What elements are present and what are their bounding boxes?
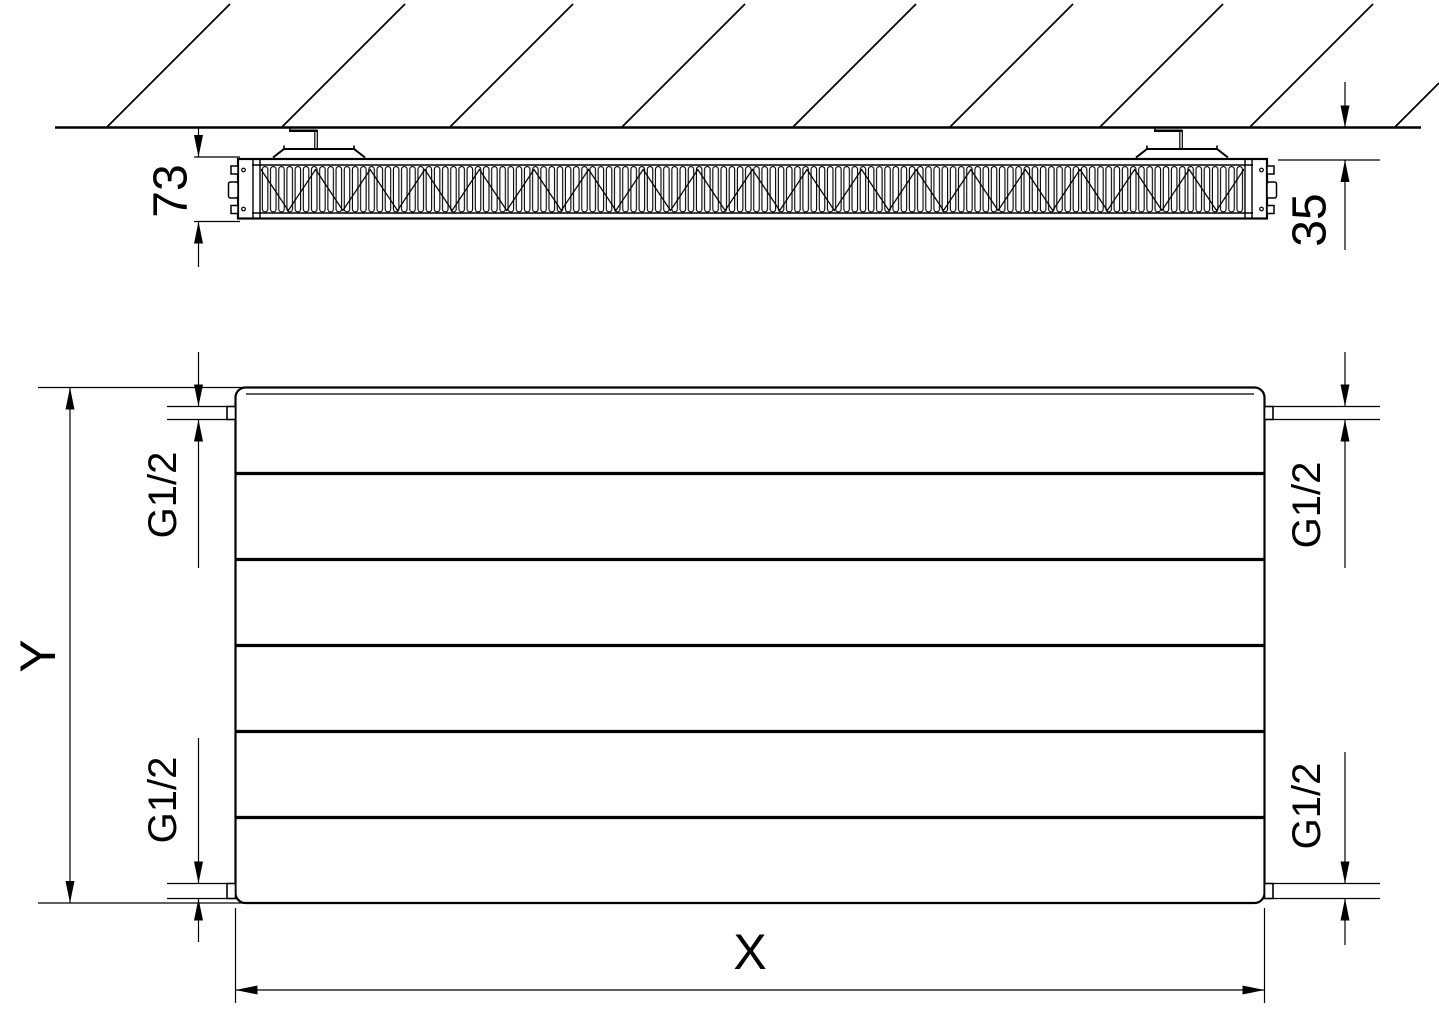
dim-g12-top-left: G1/2 xyxy=(141,352,227,568)
arrow-left-icon xyxy=(236,986,258,995)
radiator-top-view xyxy=(229,128,1277,219)
arrow-down-icon xyxy=(1341,106,1350,128)
arrow-up-icon xyxy=(1341,160,1350,182)
arrow-down-icon xyxy=(66,881,75,903)
wall-hatching xyxy=(107,4,1439,127)
connection-stub-bottom-left xyxy=(227,884,236,899)
convector-fins xyxy=(261,166,1244,213)
dim-x: X xyxy=(236,908,1265,1003)
dim-g12-bottom-left: G1/2 xyxy=(141,738,227,942)
connection-stub-top-left xyxy=(227,407,236,420)
g12-bottom-left-label: G1/2 xyxy=(141,757,185,844)
connection-stub-bottom-right xyxy=(1265,884,1274,899)
arrow-up-icon xyxy=(194,420,203,442)
dim-x-label: X xyxy=(733,924,766,980)
radiator-technical-drawing: 73 35 G1/2 xyxy=(0,0,1439,1025)
dim-35-label: 35 xyxy=(1284,193,1337,246)
arrow-down-icon xyxy=(1341,862,1350,884)
dim-y: Y xyxy=(10,388,248,904)
wall-bracket-left xyxy=(273,128,365,158)
arrow-up-icon xyxy=(1341,899,1350,921)
dim-73: 73 xyxy=(145,128,241,268)
arrow-up-icon xyxy=(66,388,75,410)
arrow-up-icon xyxy=(194,222,203,244)
radiator-front-view xyxy=(227,388,1273,904)
wall-bracket-right xyxy=(1136,128,1228,158)
connection-stub-top-right xyxy=(1265,407,1274,420)
arrow-up-icon xyxy=(194,899,203,921)
arrow-down-icon xyxy=(1341,385,1350,407)
arrow-up-icon xyxy=(1341,420,1350,442)
dim-73-label: 73 xyxy=(145,164,198,217)
dim-35: 35 xyxy=(1278,82,1380,250)
dim-g12-bottom-right: G1/2 xyxy=(1273,752,1380,945)
arrow-right-icon xyxy=(1243,986,1265,995)
g12-top-right-label: G1/2 xyxy=(1285,462,1329,549)
dim-y-label: Y xyxy=(10,639,66,672)
g12-bottom-right-label: G1/2 xyxy=(1285,763,1329,850)
g12-top-left-label: G1/2 xyxy=(141,452,185,539)
arrow-down-icon xyxy=(194,135,203,157)
arrow-down-icon xyxy=(194,862,203,884)
dim-g12-top-right: G1/2 xyxy=(1273,352,1380,568)
